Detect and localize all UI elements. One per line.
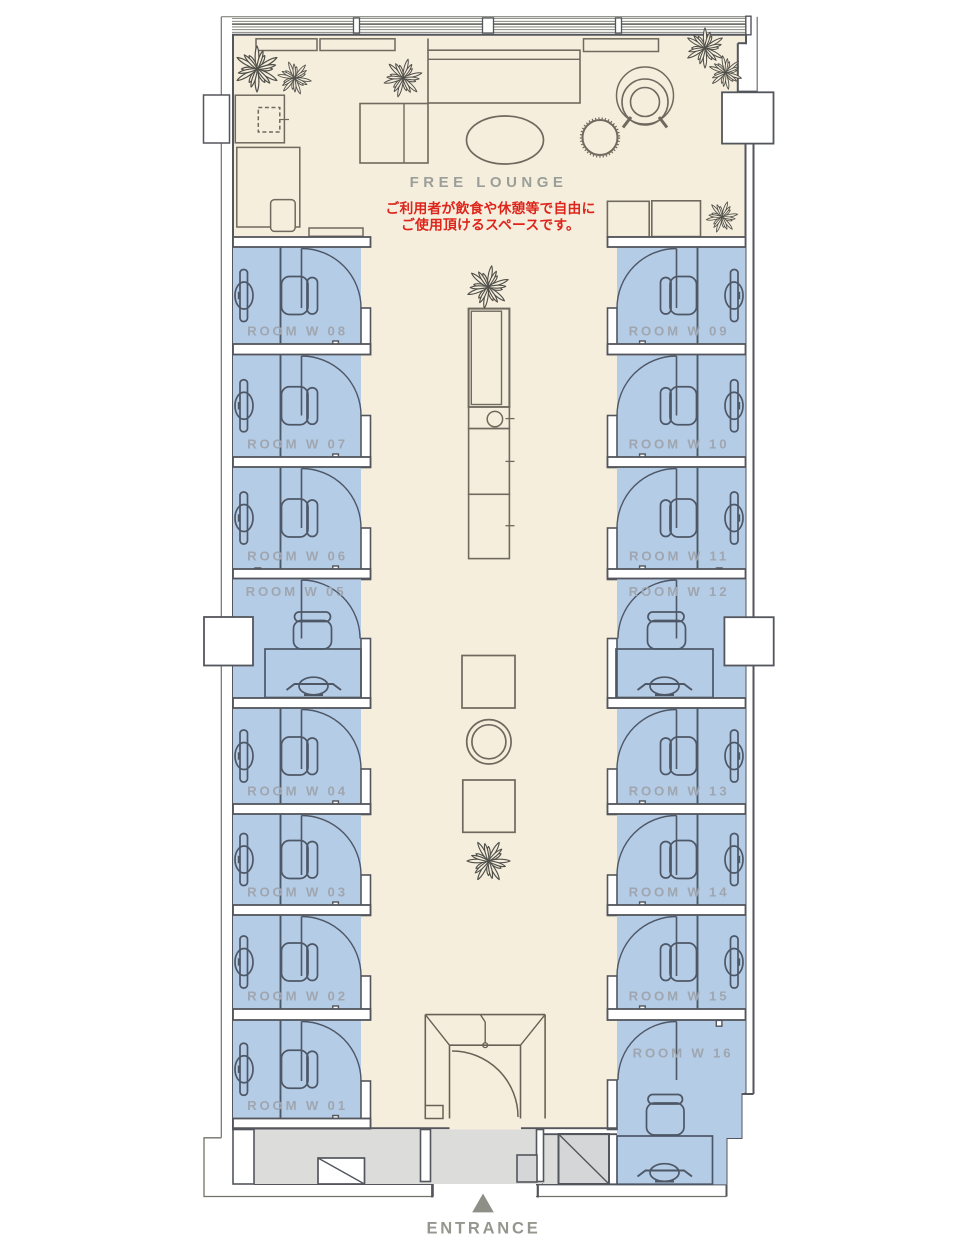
svg-text:ROOM W 10: ROOM W 10 <box>629 437 730 452</box>
svg-text:ENTRANCE: ENTRANCE <box>426 1220 540 1238</box>
svg-text:ROOM W 14: ROOM W 14 <box>629 885 730 900</box>
svg-text:ROOM W 02: ROOM W 02 <box>247 989 348 1004</box>
svg-text:ROOM W 13: ROOM W 13 <box>629 784 730 799</box>
svg-text:ROOM W 08: ROOM W 08 <box>247 324 348 339</box>
svg-text:ROOM W 05: ROOM W 05 <box>246 584 347 599</box>
svg-text:ROOM W 04: ROOM W 04 <box>247 784 348 799</box>
svg-text:ROOM W 12: ROOM W 12 <box>629 584 730 599</box>
svg-text:ROOM W 15: ROOM W 15 <box>629 989 730 1004</box>
svg-text:ROOM W 01: ROOM W 01 <box>247 1098 348 1113</box>
svg-text:ROOM W 09: ROOM W 09 <box>629 324 730 339</box>
svg-text:ROOM W 03: ROOM W 03 <box>247 885 348 900</box>
svg-text:ROOM W 06: ROOM W 06 <box>247 549 348 564</box>
svg-text:ROOM W 07: ROOM W 07 <box>247 437 348 452</box>
svg-text:ROOM W 16: ROOM W 16 <box>633 1046 734 1061</box>
svg-text:FREE LOUNGE: FREE LOUNGE <box>410 174 568 191</box>
svg-text:ご利用者が飲食や休憩等で自由に: ご利用者が飲食や休憩等で自由に <box>386 200 596 216</box>
svg-text:ROOM W 11: ROOM W 11 <box>629 549 729 564</box>
svg-text:ご使用頂けるスペースです。: ご使用頂けるスペースです。 <box>401 217 580 233</box>
